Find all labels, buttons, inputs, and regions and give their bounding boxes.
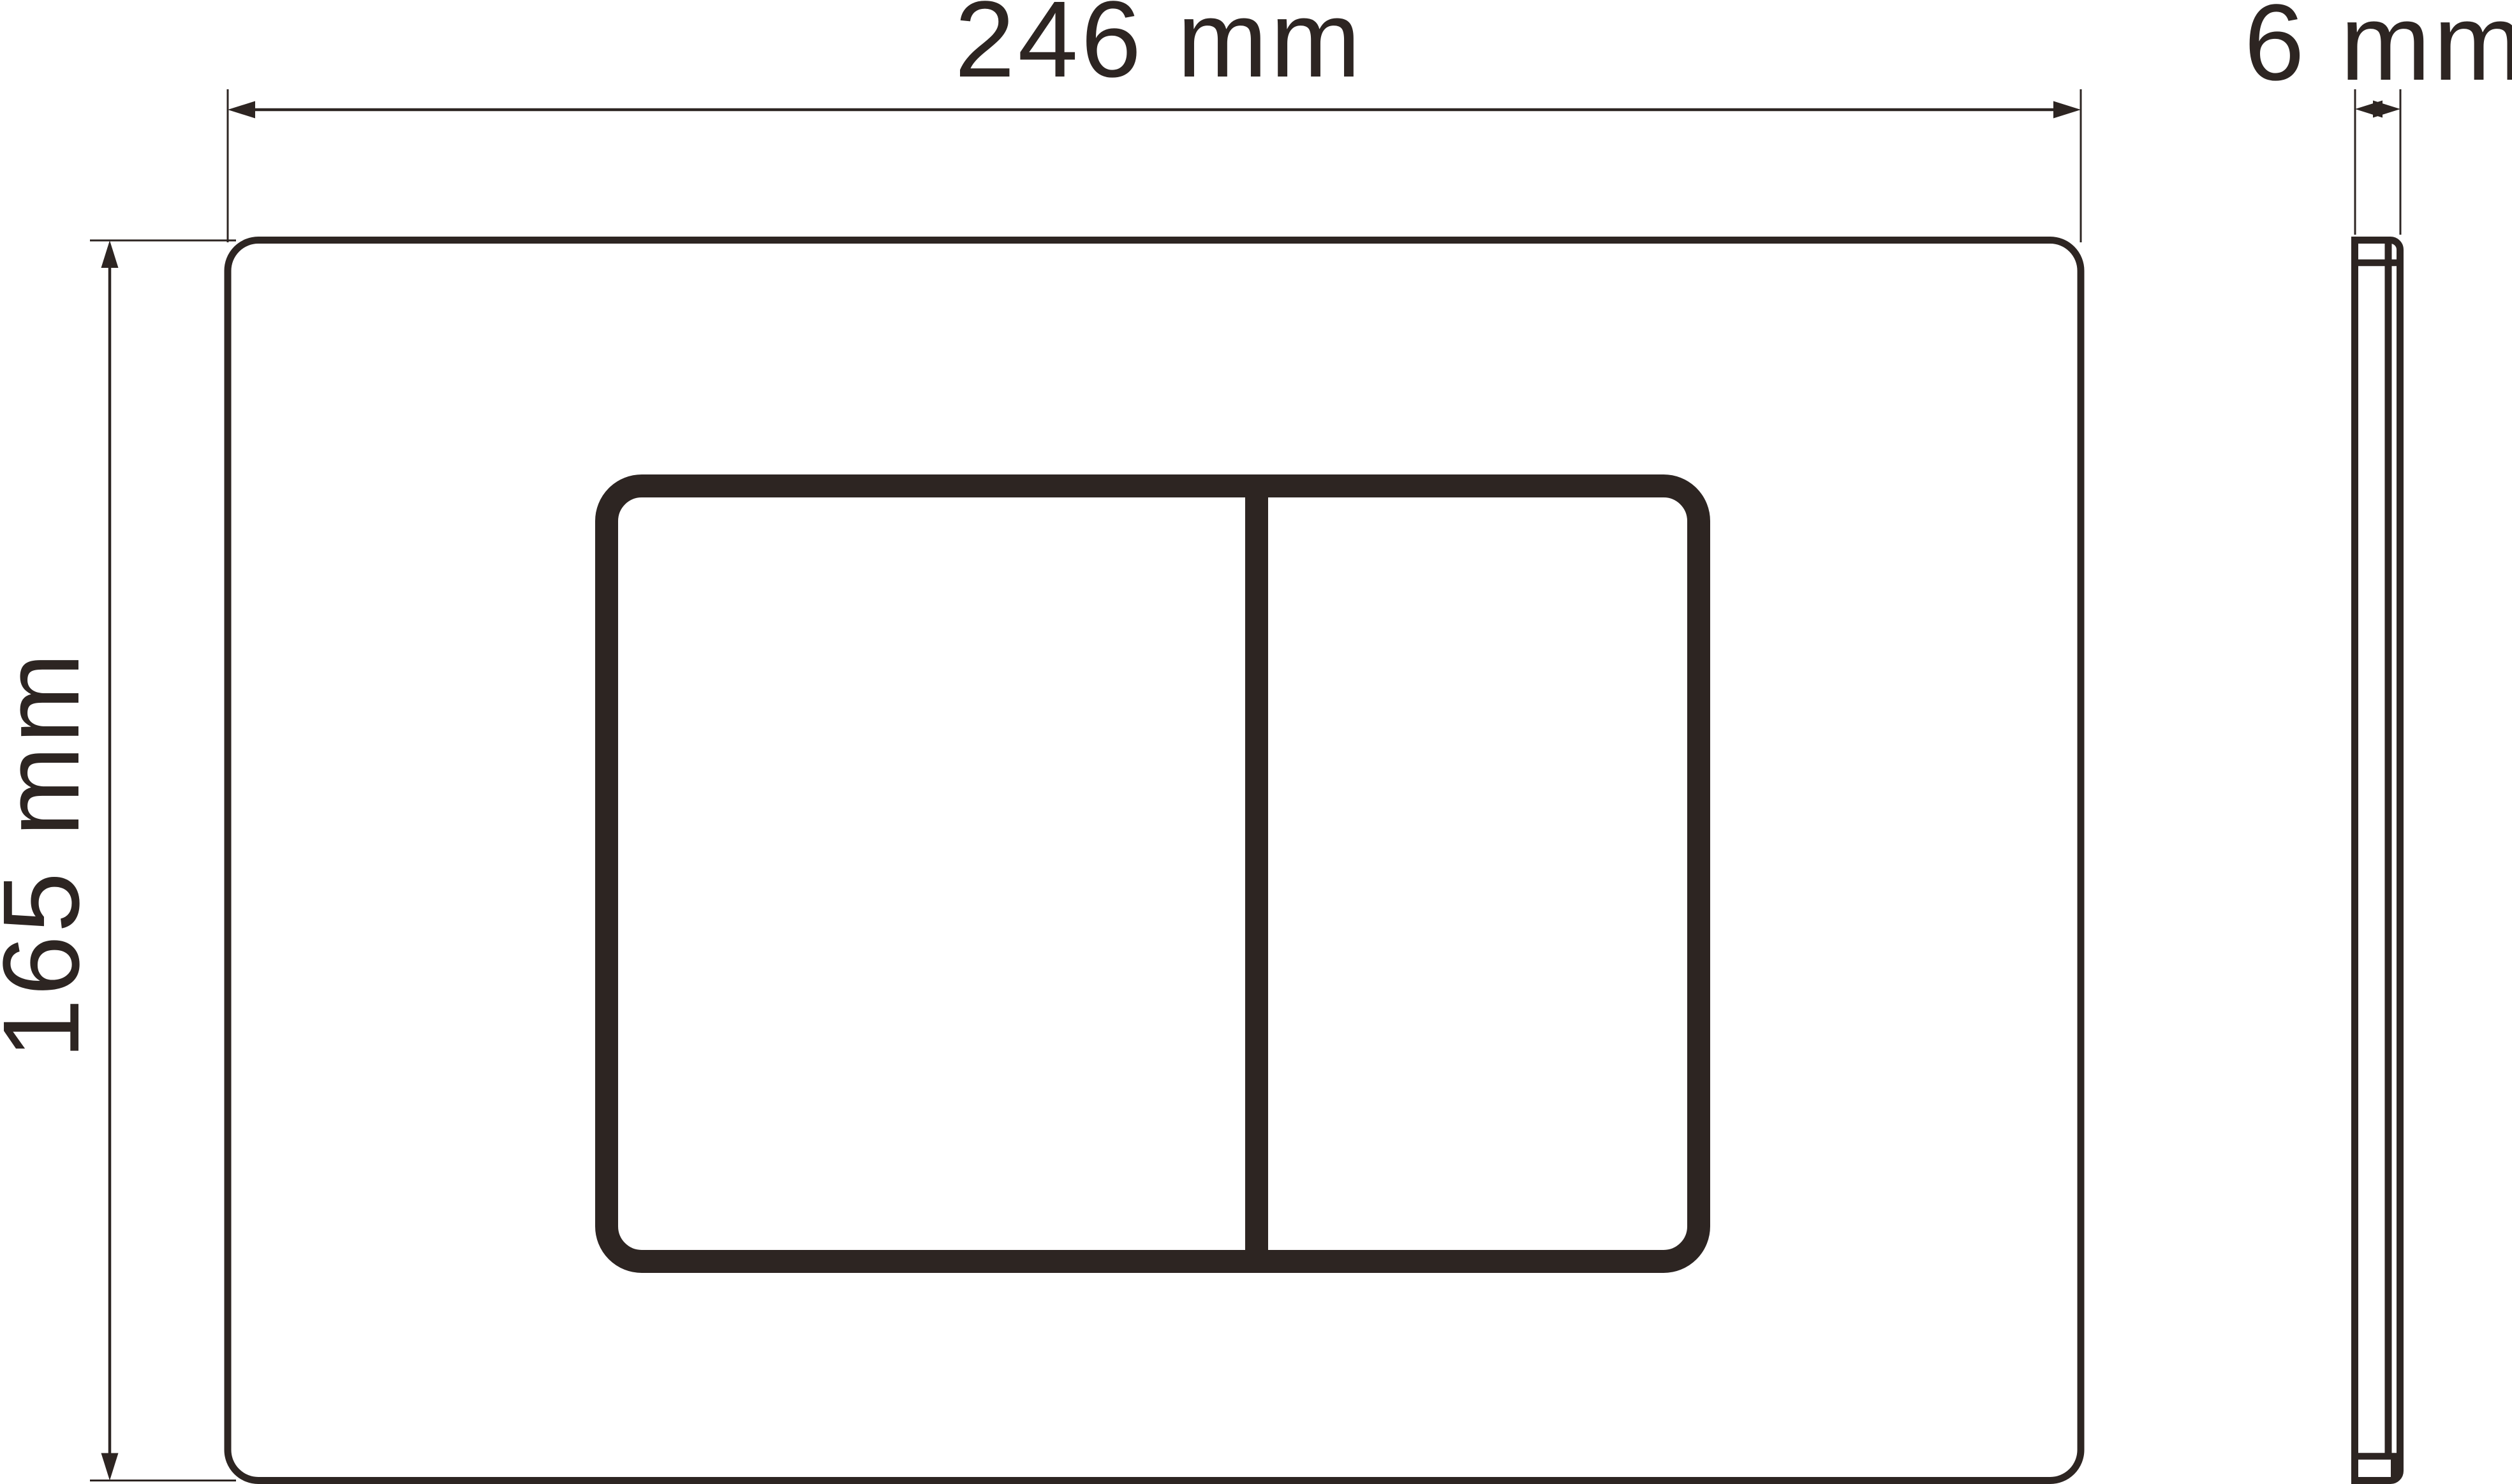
svg-text:246 mm: 246 mm (954, 0, 1363, 100)
svg-text:165 mm: 165 mm (0, 650, 102, 1059)
svg-text:6 mm: 6 mm (2244, 0, 2512, 103)
